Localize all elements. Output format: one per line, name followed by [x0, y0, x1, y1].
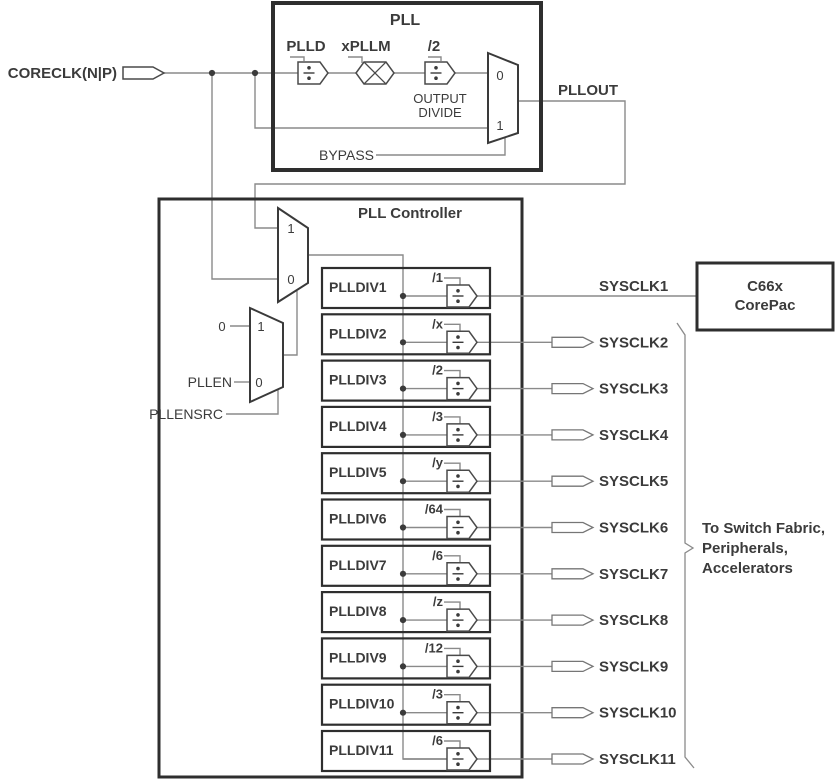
- sysclk-label: SYSCLK9: [599, 658, 668, 675]
- bypass-select-wire: [376, 138, 505, 156]
- plldiv-name: PLLDIV8: [329, 603, 387, 619]
- junction-dot: [400, 478, 406, 484]
- plldiv-row: PLLDIV11 /6 SYSCLK11: [322, 731, 676, 771]
- div-label-wire: [444, 602, 460, 609]
- junction-dot: [400, 710, 406, 716]
- plldiv-row: PLLDIV2 /x SYSCLK2: [322, 314, 668, 354]
- divide-ratio-label: /12: [425, 640, 443, 655]
- wire-layer: [164, 57, 625, 759]
- plldiv-name: PLLDIV6: [329, 511, 387, 527]
- plldiv-row: PLLDIV3 /2 SYSCLK3: [322, 361, 668, 401]
- pllm-label-wire: [348, 57, 362, 63]
- sysclk-label: SYSCLK6: [599, 520, 668, 537]
- plldiv-name: PLLDIV4: [329, 418, 387, 434]
- output-buffer-icon: [552, 754, 593, 764]
- pllen-mux-in1-label: 1: [257, 319, 264, 334]
- pllout-label: PLLOUT: [558, 82, 618, 99]
- pllen-label: PLLEN: [188, 374, 232, 390]
- div-label-wire: [444, 417, 460, 424]
- pll-controller-title: PLL Controller: [358, 205, 462, 222]
- div-label-wire: [444, 741, 460, 748]
- output-buffer-icon: [552, 523, 593, 533]
- coreclk-label: CORECLK(N|P): [8, 65, 117, 82]
- pll-clock-diagram: PLL PLLD xPLLM /2 OUTPUT DIVIDE 0 1 BYPA…: [0, 0, 835, 781]
- output-buffer-icon: [552, 615, 593, 625]
- plldiv-row: PLLDIV8 /z SYSCLK8: [322, 592, 668, 632]
- fanout-note-line1: To Switch Fabric,: [702, 520, 825, 537]
- output-divider-icon: [425, 62, 455, 84]
- corepac-line2: CorePac: [735, 297, 796, 314]
- plldiv-name: PLLDIV10: [329, 696, 395, 712]
- plldiv-name: PLLDIV9: [329, 649, 387, 665]
- divide-ratio-label: /z: [433, 594, 444, 609]
- plld-divider-icon: [298, 62, 328, 84]
- sysclk-label: SYSCLK11: [599, 751, 676, 768]
- divide-ratio-label: /6: [432, 548, 443, 563]
- fanout-brace: [677, 323, 694, 768]
- clock-source-mux-in0-label: 0: [287, 272, 294, 287]
- plldiv-row: PLLDIV7 /6 SYSCLK7: [322, 546, 668, 586]
- junction-dot: [400, 571, 406, 577]
- output-buffer-icon: [552, 384, 593, 394]
- bypass-mux-in1-label: 1: [496, 118, 503, 133]
- pllm-label: xPLLM: [341, 38, 390, 55]
- sysclk-label: SYSCLK4: [599, 427, 669, 444]
- junction-dot: [400, 524, 406, 530]
- plldiv-name: PLLDIV11: [329, 742, 394, 758]
- outdiv-label: /2: [428, 38, 441, 55]
- junction-dot: [400, 432, 406, 438]
- plldiv-rows: PLLDIV1 /1 SYSCLK1 PLLDIV2 /x: [322, 268, 697, 771]
- bypass-label: BYPASS: [319, 147, 374, 163]
- outdiv-caption-2: DIVIDE: [418, 105, 462, 120]
- plldiv-name: PLLDIV1: [329, 279, 387, 295]
- sysclk-label: SYSCLK2: [599, 334, 668, 351]
- div-label-wire: [444, 324, 460, 331]
- divider-icon: [447, 285, 477, 307]
- junction-dot: [400, 293, 406, 299]
- output-buffer-icon: [552, 476, 593, 486]
- sysclk-label: SYSCLK8: [599, 612, 668, 629]
- divider-icon: [447, 331, 477, 353]
- junction-dot: [400, 339, 406, 345]
- plldiv-row: PLLDIV1 /1 SYSCLK1: [322, 268, 697, 308]
- divider-icon: [447, 378, 477, 400]
- divider-icon: [447, 748, 477, 770]
- plldiv-row: PLLDIV10 /3 SYSCLK10: [322, 685, 677, 725]
- div-label-wire: [444, 371, 460, 378]
- plld-label-wire: [290, 57, 304, 61]
- pll-title: PLL: [390, 12, 420, 29]
- corepac-line1: C66x: [747, 278, 784, 295]
- divide-ratio-label: /2: [432, 363, 443, 378]
- divide-ratio-label: /y: [432, 455, 444, 470]
- junction-dot: [400, 663, 406, 669]
- divide-ratio-label: /3: [432, 687, 443, 702]
- outdiv-label-wire: [428, 57, 441, 61]
- junction-dot: [209, 70, 215, 76]
- sysclk-label: SYSCLK1: [599, 278, 668, 295]
- plldiv-row: PLLDIV5 /y SYSCLK5: [322, 453, 668, 493]
- junction-dot: [252, 70, 258, 76]
- coreclk-to-controller-wire: [212, 73, 278, 279]
- output-buffer-icon: [552, 430, 593, 440]
- output-buffer-icon: [552, 337, 593, 347]
- div-label-wire: [444, 278, 460, 285]
- multiplier-icon: [356, 62, 394, 84]
- divider-icon: [447, 424, 477, 446]
- divider-icon: [447, 470, 477, 492]
- divide-ratio-label: /3: [432, 409, 443, 424]
- junction-dot: [400, 385, 406, 391]
- div-label-wire: [444, 556, 460, 563]
- coreclk-pin-icon: [123, 67, 164, 79]
- divider-icon: [447, 609, 477, 631]
- divide-ratio-label: /1: [432, 270, 443, 285]
- sysclk-label: SYSCLK3: [599, 381, 668, 398]
- plldiv-row: PLLDIV9 /12 SYSCLK9: [322, 638, 668, 678]
- output-buffer-icon: [552, 661, 593, 671]
- divide-ratio-label: /6: [432, 733, 443, 748]
- pllen-mux-in0-label: 0: [255, 375, 262, 390]
- output-buffer-icon: [552, 569, 593, 579]
- sysclk-label: SYSCLK10: [599, 705, 677, 722]
- divider-icon: [447, 517, 477, 539]
- clock-source-mux-in1-label: 1: [287, 221, 294, 236]
- divide-ratio-label: /x: [432, 316, 444, 331]
- bypass-mux-in0-label: 0: [496, 68, 503, 83]
- junction-dot: [400, 617, 406, 623]
- divider-icon: [447, 655, 477, 677]
- div-label-wire: [444, 695, 460, 702]
- output-buffer-icon: [552, 708, 593, 718]
- pllensrc-label: PLLENSRC: [149, 406, 223, 422]
- plldiv-row: PLLDIV6 /64 SYSCLK6: [322, 500, 668, 540]
- divider-icon: [447, 702, 477, 724]
- plldiv-name: PLLDIV7: [329, 557, 387, 573]
- plld-label: PLLD: [286, 38, 325, 55]
- plldiv-row: PLLDIV4 /3 SYSCLK4: [322, 407, 669, 447]
- div-label-wire: [444, 463, 460, 470]
- plldiv-name: PLLDIV5: [329, 464, 387, 480]
- sysclk-label: SYSCLK5: [599, 473, 668, 490]
- plldiv-name: PLLDIV3: [329, 372, 387, 388]
- diagram-canvas: PLL PLLD xPLLM /2 OUTPUT DIVIDE 0 1 BYPA…: [0, 0, 835, 781]
- divide-ratio-label: /64: [425, 502, 444, 517]
- outdiv-caption-1: OUTPUT: [413, 91, 467, 106]
- enable-select-wire: [283, 291, 297, 355]
- divider-icon: [447, 563, 477, 585]
- div-label-wire: [444, 648, 460, 655]
- const-zero-label: 0: [218, 319, 225, 334]
- plldiv-name: PLLDIV2: [329, 325, 387, 341]
- fanout-note-line2: Peripherals,: [702, 540, 788, 557]
- div-label-wire: [444, 510, 460, 517]
- fanout-note-line3: Accelerators: [702, 560, 793, 577]
- sysclk-label: SYSCLK7: [599, 566, 668, 583]
